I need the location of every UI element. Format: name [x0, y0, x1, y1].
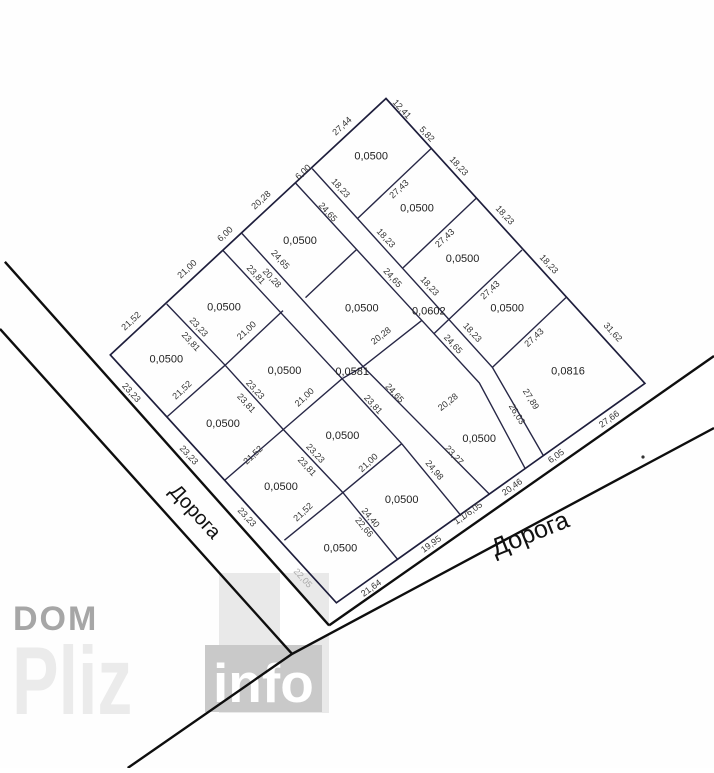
svg-text:0,0500: 0,0500: [326, 430, 360, 442]
svg-text:0,0500: 0,0500: [490, 303, 524, 315]
svg-text:info: info: [213, 652, 314, 714]
svg-text:0,0500: 0,0500: [206, 418, 240, 430]
svg-text:DOM: DOM: [13, 600, 98, 638]
svg-text:0,0500: 0,0500: [345, 303, 379, 315]
svg-text:0,0500: 0,0500: [149, 353, 183, 365]
svg-text:0,0500: 0,0500: [268, 365, 302, 377]
svg-text:0,0581: 0,0581: [335, 366, 369, 378]
svg-text:0,0500: 0,0500: [264, 481, 298, 493]
svg-text:0,0500: 0,0500: [354, 151, 388, 163]
svg-text:0,0500: 0,0500: [462, 433, 496, 445]
svg-text:Pliz: Pliz: [12, 626, 132, 735]
svg-text:0,0500: 0,0500: [207, 302, 241, 314]
svg-text:0,0500: 0,0500: [283, 235, 317, 247]
svg-text:0,0500: 0,0500: [446, 253, 480, 265]
svg-text:0,0500: 0,0500: [385, 494, 419, 506]
svg-text:0,0816: 0,0816: [551, 366, 585, 378]
svg-text:0,0500: 0,0500: [400, 202, 434, 214]
svg-text:0,0602: 0,0602: [412, 305, 446, 317]
svg-text:0,0500: 0,0500: [324, 543, 358, 555]
